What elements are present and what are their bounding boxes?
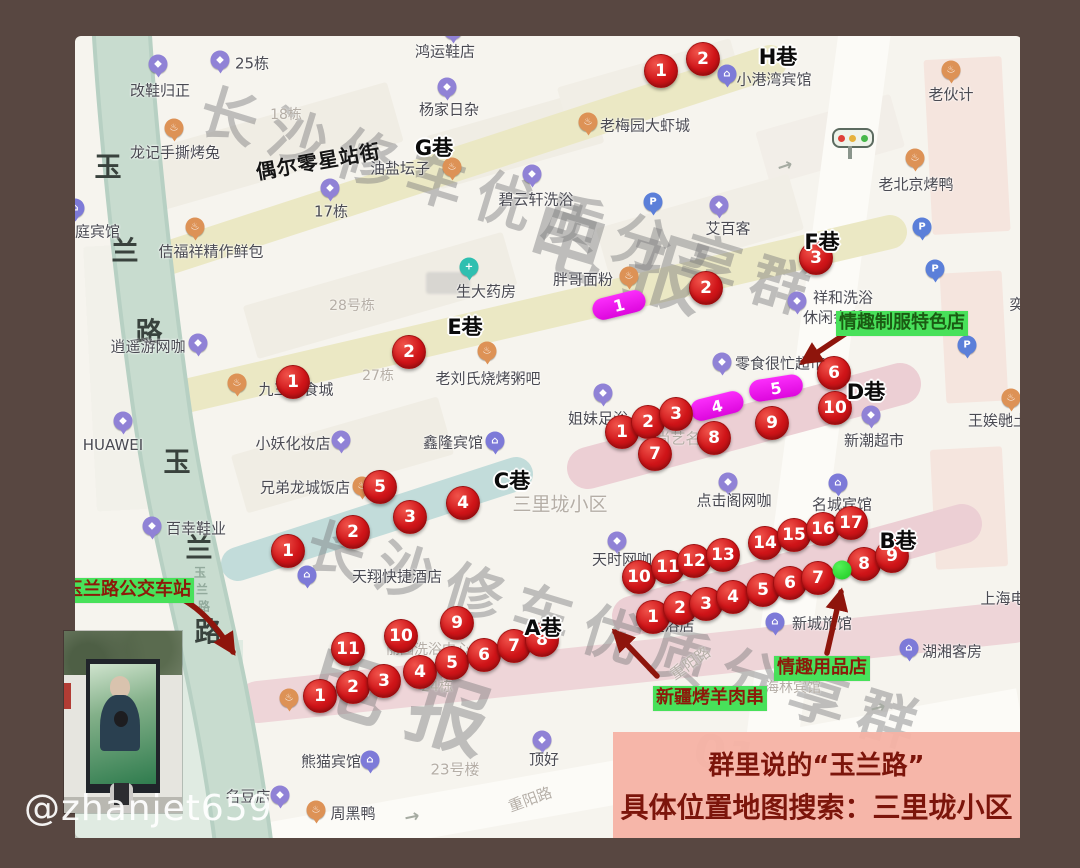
frame-top bbox=[0, 0, 1080, 36]
frame-bottom bbox=[0, 838, 1080, 868]
arrow-to-bbq bbox=[615, 632, 657, 676]
author-handle: @zhanjet659 bbox=[24, 788, 273, 829]
label-bus-station: 玉兰路公交车站 bbox=[62, 578, 194, 603]
label-uniform-shop: 情趣制服特色店 bbox=[836, 311, 968, 336]
screenshot-root: 长沙修车优质分享群 电报 长沙修车优质分享群 电报 01 18栋28号栋27栋尚… bbox=[0, 0, 1080, 868]
arrow-to-bus-station bbox=[180, 598, 233, 652]
frame-right bbox=[1020, 0, 1080, 868]
label-bbq-skewers: 新疆烤羊肉串 bbox=[653, 686, 767, 711]
arrow-to-uniform-shop bbox=[803, 332, 848, 362]
arrow-to-adult-shop bbox=[827, 592, 841, 653]
bus-stop-photo bbox=[64, 631, 182, 813]
photo-poster-person bbox=[110, 676, 130, 698]
label-adult-shop: 情趣用品店 bbox=[774, 656, 870, 681]
